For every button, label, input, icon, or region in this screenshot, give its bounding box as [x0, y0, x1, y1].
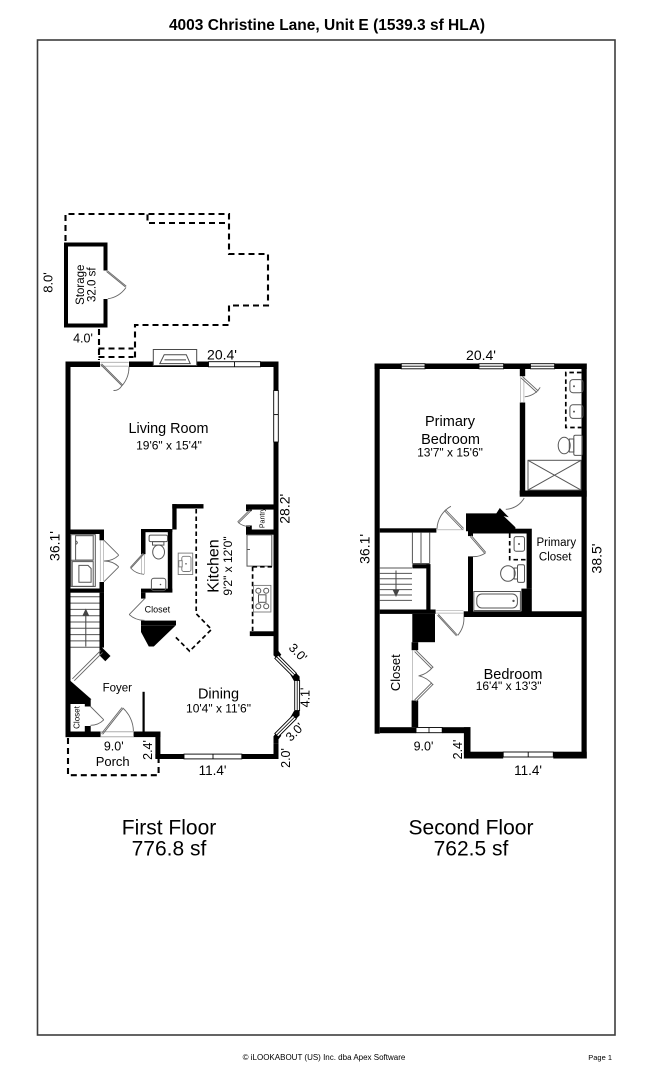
svg-text:Page 1: Page 1 — [588, 1053, 612, 1062]
svg-text:36.1': 36.1' — [357, 534, 373, 564]
svg-text:Living Room: Living Room — [129, 421, 209, 437]
svg-text:Closet: Closet — [73, 705, 82, 728]
svg-text:Pantry: Pantry — [259, 507, 266, 528]
svg-text:28.2': 28.2' — [277, 494, 293, 524]
svg-text:776.8 sf: 776.8 sf — [132, 838, 207, 861]
svg-text:13'7" x 15'6": 13'7" x 15'6" — [417, 445, 483, 459]
svg-text:20.4': 20.4' — [466, 347, 496, 363]
svg-text:2.4': 2.4' — [141, 740, 155, 760]
svg-text:11.4': 11.4' — [199, 763, 227, 778]
svg-text:19'6" x 15'4": 19'6" x 15'4" — [136, 439, 202, 453]
svg-text:Primary: Primary — [425, 414, 476, 430]
svg-text:762.5 sf: 762.5 sf — [434, 838, 509, 861]
svg-text:16'4" x 13'3": 16'4" x 13'3" — [476, 679, 542, 693]
svg-text:Storage: Storage — [75, 265, 87, 305]
svg-text:4.1': 4.1' — [299, 688, 313, 708]
svg-text:Closet: Closet — [145, 605, 171, 615]
svg-text:Foyer: Foyer — [103, 682, 133, 694]
svg-text:20.4': 20.4' — [207, 347, 237, 363]
svg-text:9'2" x 12'0": 9'2" x 12'0" — [221, 536, 235, 595]
svg-text:4.0': 4.0' — [73, 331, 93, 345]
svg-text:32.0 sf: 32.0 sf — [86, 267, 98, 302]
svg-text:36.1': 36.1' — [47, 531, 63, 561]
svg-text:11.4': 11.4' — [514, 763, 542, 778]
svg-text:2.0': 2.0' — [279, 748, 293, 768]
svg-text:2.4': 2.4' — [451, 740, 465, 760]
svg-text:Porch: Porch — [96, 754, 130, 769]
svg-text:Second Floor: Second Floor — [409, 817, 534, 840]
svg-text:9.0': 9.0' — [104, 740, 124, 754]
svg-text:First Floor: First Floor — [122, 817, 217, 840]
svg-text:4003 Christine Lane, Unit E (1: 4003 Christine Lane, Unit E (1539.3 sf H… — [169, 17, 485, 34]
svg-text:© iLOOKABOUT (US) Inc. dba Ape: © iLOOKABOUT (US) Inc. dba Apex Software — [243, 1053, 406, 1062]
svg-text:Primary: Primary — [536, 537, 576, 549]
svg-text:Dining: Dining — [198, 687, 239, 703]
svg-text:8.0': 8.0' — [41, 272, 56, 293]
svg-text:10'4" x 11'6": 10'4" x 11'6" — [186, 702, 251, 716]
svg-text:Closet: Closet — [388, 654, 403, 691]
svg-text:9.0': 9.0' — [414, 740, 434, 754]
svg-text:Closet: Closet — [539, 551, 572, 563]
svg-text:38.5': 38.5' — [589, 544, 605, 574]
